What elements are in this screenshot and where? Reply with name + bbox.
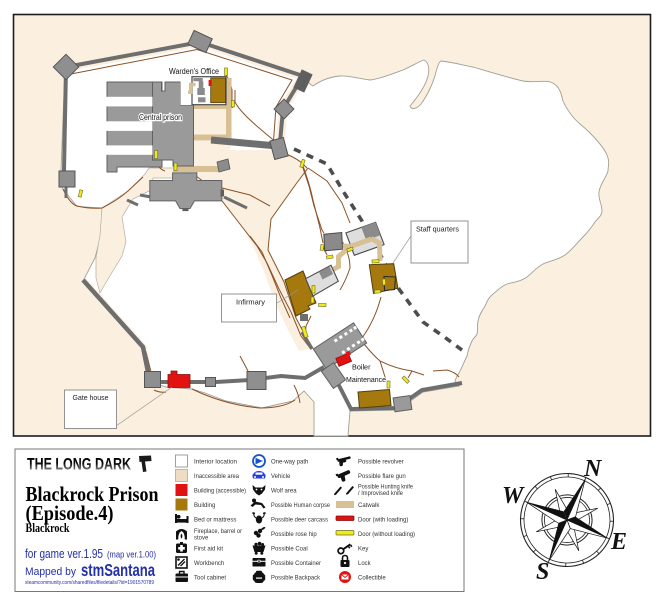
svg-text:Gate house: Gate house xyxy=(73,393,109,402)
svg-text:Building (accessible): Building (accessible) xyxy=(194,489,246,495)
svg-text:Possible revolver: Possible revolver xyxy=(358,460,404,466)
svg-text:for game ver.1.95: for game ver.1.95 xyxy=(25,547,103,561)
svg-text:Catwalk: Catwalk xyxy=(358,503,380,509)
svg-text:Door (with loading): Door (with loading) xyxy=(358,518,408,524)
svg-text:Central prison: Central prison xyxy=(139,112,182,122)
svg-text:Fireplace, barrel or: Fireplace, barrel or xyxy=(194,529,242,535)
svg-text:S: S xyxy=(536,559,549,585)
svg-text:THE LONG DARK: THE LONG DARK xyxy=(27,455,132,474)
svg-text:W: W xyxy=(502,483,525,509)
svg-text:(map ver.1.00): (map ver.1.00) xyxy=(107,550,156,560)
svg-text:Possible Human corpse: Possible Human corpse xyxy=(271,503,331,509)
svg-text:Possible Hunting knife: Possible Hunting knife xyxy=(358,485,414,491)
svg-text:Lock: Lock xyxy=(358,561,372,567)
svg-text:E: E xyxy=(610,529,627,555)
svg-text:Infirmary: Infirmary xyxy=(236,298,265,307)
svg-text:/ Improvised knife: / Improvised knife xyxy=(358,491,404,497)
svg-text:Maintenance: Maintenance xyxy=(346,375,386,384)
svg-text:Warden's Office: Warden's Office xyxy=(169,67,219,76)
svg-text:Possible rose hip: Possible rose hip xyxy=(271,532,317,538)
svg-text:Key: Key xyxy=(358,547,368,553)
svg-text:Bed or mattress: Bed or mattress xyxy=(194,518,236,524)
svg-text:Building: Building xyxy=(194,503,215,509)
svg-text:Inaccessible area: Inaccessible area xyxy=(194,474,240,480)
svg-text:Interior location: Interior location xyxy=(194,460,237,466)
svg-text:Wolf area: Wolf area xyxy=(271,489,297,495)
svg-text:One-way path: One-way path xyxy=(271,460,308,466)
svg-text:Possible flare gun: Possible flare gun xyxy=(358,474,406,480)
svg-text:Tool cabinet: Tool cabinet xyxy=(194,576,226,582)
svg-text:Door (without loading): Door (without loading) xyxy=(358,532,415,538)
svg-text:Possible Container: Possible Container xyxy=(271,561,321,567)
svg-text:First aid kit: First aid kit xyxy=(194,547,223,553)
svg-text:Possible Backpack: Possible Backpack xyxy=(271,576,321,582)
svg-text:Boiler: Boiler xyxy=(352,363,371,372)
svg-text:Mapped by: Mapped by xyxy=(25,566,76,578)
svg-text:Blackrock: Blackrock xyxy=(26,521,70,535)
svg-text:Possible deer carcass: Possible deer carcass xyxy=(271,518,328,524)
svg-text:N: N xyxy=(583,456,603,482)
svg-text:Collectible: Collectible xyxy=(358,576,386,582)
svg-text:Vehicle: Vehicle xyxy=(271,474,291,480)
svg-text:steamcommunity.com/sharedfiles: steamcommunity.com/sharedfiles/filedetai… xyxy=(25,580,154,586)
svg-text:stove: stove xyxy=(194,536,209,542)
svg-text:Workbench: Workbench xyxy=(194,561,224,567)
svg-text:Possible Coal: Possible Coal xyxy=(271,547,308,553)
svg-text:stmSantana: stmSantana xyxy=(81,560,155,580)
svg-text:Staff quarters: Staff quarters xyxy=(416,225,459,234)
